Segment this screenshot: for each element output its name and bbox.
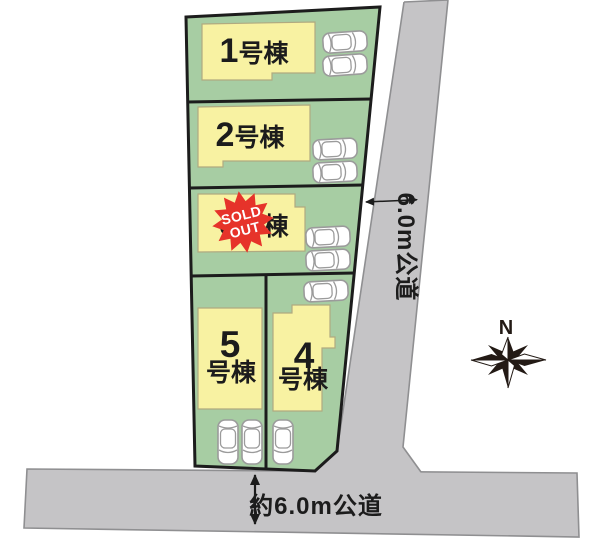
- compass-north-label: N: [499, 317, 513, 339]
- site-plan-drawing: 1号棟 2号棟 3号棟 5 号棟 4 号棟 SOLD OUT 6.0m公道 約6…: [0, 0, 600, 546]
- car-icon: [306, 226, 351, 248]
- car-icon: [304, 280, 349, 302]
- car-icon: [218, 420, 238, 464]
- car-icon: [273, 420, 293, 464]
- side-road-label: 6.0m公道: [392, 193, 420, 302]
- car-icon: [242, 420, 262, 464]
- car-icon: [322, 53, 367, 76]
- bottom-road-label: 約6.0m公道: [249, 492, 383, 520]
- lot-5-label-suffix: 号棟: [206, 359, 257, 387]
- car-icon: [306, 249, 351, 271]
- car-icon: [313, 138, 358, 160]
- lot-4-label-suffix: 号棟: [278, 366, 329, 394]
- site-plan: 1号棟 2号棟 3号棟 5 号棟 4 号棟 SOLD OUT 6.0m公道 約6…: [0, 0, 600, 546]
- compass-rose: N: [471, 317, 546, 388]
- car-icon: [313, 161, 358, 183]
- car-icon: [322, 30, 367, 53]
